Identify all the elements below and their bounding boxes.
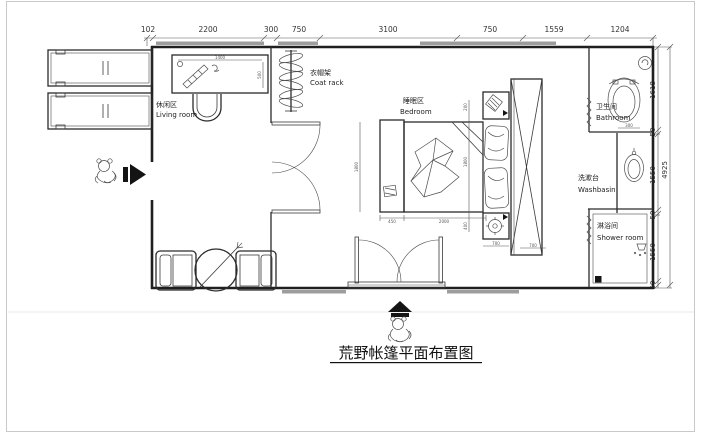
washbasin-label-en: Washbasin (578, 186, 616, 194)
bed-bench (380, 120, 404, 212)
living-room-label-zh: 休闲区 (156, 100, 177, 109)
person-figure-bottom-icon (388, 317, 411, 342)
dim-bed-length: 1800 (354, 161, 359, 172)
dim-top-300: 300 (264, 25, 279, 34)
outdoor-lounge-top (48, 50, 152, 86)
wall-poche-bottom-right (447, 290, 519, 294)
dim-bathroom-300: 300 (625, 123, 633, 128)
dim-right-total-4925: 4925 (661, 161, 669, 179)
wall-poche-bottom-left (282, 290, 346, 294)
floor-drain-icon (595, 276, 602, 283)
drawing-title: 荒野帐篷平面布置图 (330, 344, 482, 363)
shower-head-icon (634, 244, 646, 256)
double-door-entrance (348, 237, 445, 288)
living-room-label-en: Living room (156, 111, 197, 119)
dim-top-750a: 750 (292, 25, 307, 34)
person-figure-left-icon (95, 159, 116, 183)
bedroom-label: 睡眠区 Bedroom (400, 97, 432, 116)
living-room-label: 休闲区 Living room (156, 100, 197, 119)
door-swing-mark-bottom (503, 214, 508, 220)
floor-plan-drawing: 102 2200 300 750 3100 750 1559 1204 1618… (0, 0, 701, 434)
lamp-icon (486, 217, 504, 235)
nightstand-bottom (483, 213, 509, 239)
dim-bed-width: 2000 (439, 219, 450, 224)
washbasin-area: 洗漱台 Washbasin (578, 133, 644, 213)
bathroom: 300 卫生间 Bathroom (587, 47, 653, 132)
dim-gap-400: 400 (463, 222, 468, 230)
outer-walls (151, 42, 654, 294)
fan-icon (639, 57, 652, 70)
dim-top-102: 102 (141, 25, 156, 34)
wardrobe (511, 79, 542, 255)
bedroom-label-zh: 睡眠区 (403, 97, 424, 105)
bedroom-label-en: Bedroom (400, 108, 432, 116)
shower-room: 淋浴间 Shower room (587, 209, 653, 288)
desk-chair (193, 94, 221, 121)
dim-head-200: 200 (463, 103, 468, 111)
shower-label-en: Shower room (597, 234, 644, 242)
dim-desk-width: 1400 (215, 55, 226, 60)
dim-top-1559: 1559 (544, 25, 563, 34)
double-door-interior (272, 122, 320, 213)
bathroom-label-zh: 卫生间 (596, 102, 617, 111)
dim-top-1204: 1204 (610, 25, 629, 34)
dim-desk-depth: 500 (257, 71, 262, 79)
coat-rack (278, 50, 303, 112)
shower-label-zh: 淋浴间 (597, 221, 618, 230)
floor-plan-canvas: 102 2200 300 750 3100 750 1559 1204 1618… (0, 0, 701, 434)
washbasin-label-zh: 洗漱台 (578, 173, 599, 182)
door-swing-mark-top (503, 110, 508, 116)
dim-top-750b: 750 (483, 25, 498, 34)
window-bar-top-right (420, 42, 556, 46)
drawing-title-text: 荒野帐篷平面布置图 (338, 344, 473, 362)
coat-rack-label-en: Coat rack (310, 79, 344, 87)
desk: 1400 500 (172, 55, 268, 93)
pillows (484, 125, 509, 208)
entry-arrow-left-icon (123, 164, 146, 185)
coat-rack-label-zh: 衣帽架 (310, 68, 331, 77)
coat-rack-label: 衣帽架 Coat rack (310, 68, 344, 87)
dim-top-3100: 3100 (378, 25, 397, 34)
dim-wardrobe-width: 700 (529, 243, 537, 248)
book-on-bench (383, 185, 396, 197)
pen-on-desk (177, 61, 219, 88)
outdoor-lounge-bottom (48, 93, 152, 129)
dim-top-2200: 2200 (198, 25, 217, 34)
armchair-right (236, 251, 276, 290)
bed (404, 122, 509, 212)
quilt-sketch (411, 138, 459, 197)
window-bar-top-left (156, 42, 264, 46)
nightstand-top (483, 92, 509, 119)
dim-bench-width: 450 (388, 219, 396, 224)
washbasin-icon (625, 148, 644, 182)
dim-side-1800: 1800 (463, 156, 468, 167)
window-bar-top-mid (278, 42, 318, 46)
page-frame (7, 2, 695, 432)
armchair-left (156, 251, 196, 290)
dim-nightstand-width: 700 (492, 241, 500, 246)
entry-arrow-bottom-icon (388, 301, 412, 317)
bathroom-label-en: Bathroom (596, 114, 631, 122)
title-underline (330, 362, 482, 363)
